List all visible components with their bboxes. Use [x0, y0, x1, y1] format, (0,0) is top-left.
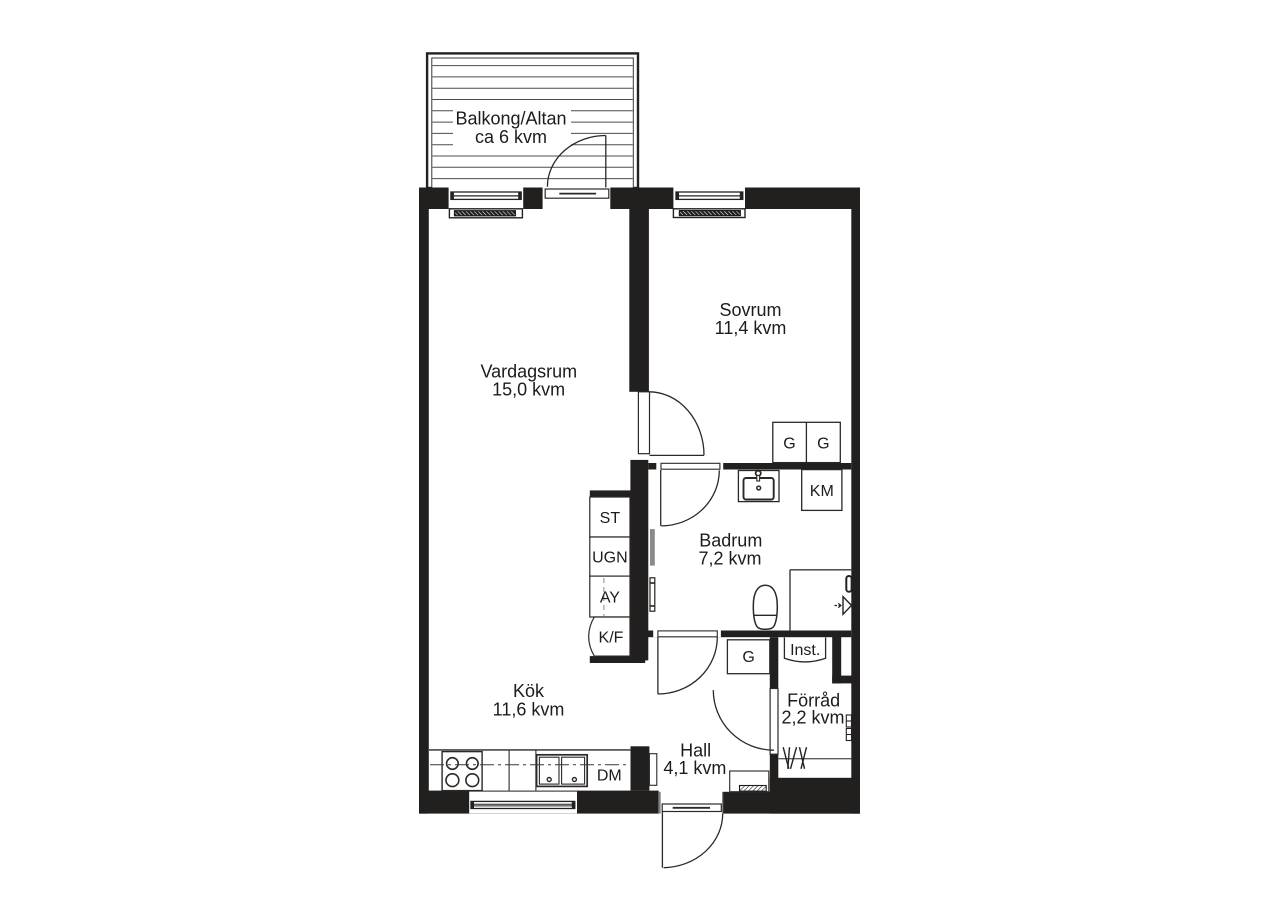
svg-text:4,1 kvm: 4,1 kvm — [663, 758, 726, 778]
svg-text:ST: ST — [600, 510, 621, 527]
svg-text:ca 6 kvm: ca 6 kvm — [475, 127, 547, 147]
svg-text:15,0 kvm: 15,0 kvm — [492, 380, 565, 400]
svg-text:G: G — [783, 436, 795, 453]
svg-text:11,4 kvm: 11,4 kvm — [715, 318, 787, 338]
svg-text:Badrum: Badrum — [699, 531, 762, 551]
svg-text:11,6 kvm: 11,6 kvm — [493, 700, 565, 720]
svg-text:2,2 kvm: 2,2 kvm — [781, 708, 844, 728]
svg-text:Balkong/Altan: Balkong/Altan — [455, 109, 566, 129]
svg-text:Sovrum: Sovrum — [719, 300, 781, 320]
svg-text:KM: KM — [810, 483, 834, 500]
svg-text:7,2 kvm: 7,2 kvm — [698, 549, 761, 569]
svg-text:K/F: K/F — [599, 630, 624, 647]
svg-text:Vardagsrum: Vardagsrum — [480, 362, 577, 382]
svg-text:G: G — [817, 436, 829, 453]
svg-text:Kök: Kök — [513, 681, 545, 701]
svg-text:G: G — [742, 649, 754, 666]
svg-text:Inst.: Inst. — [790, 642, 820, 659]
svg-text:AY: AY — [600, 590, 620, 607]
svg-text:DM: DM — [597, 768, 622, 785]
svg-text:UGN: UGN — [592, 550, 628, 567]
